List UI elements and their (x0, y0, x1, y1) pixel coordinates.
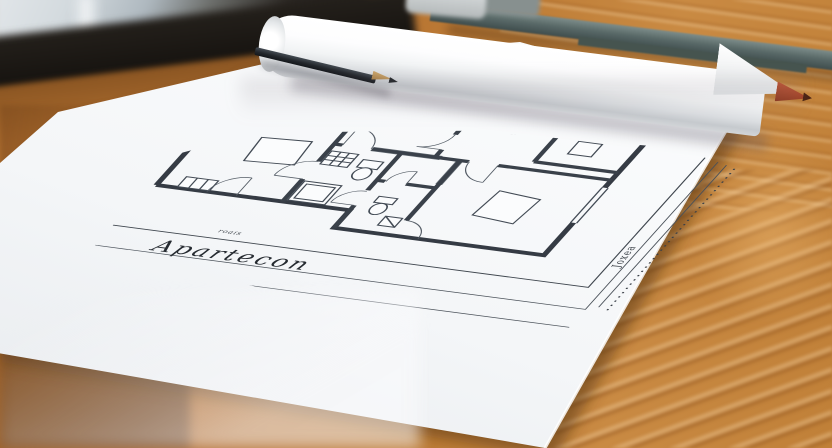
soft-shadow-overlay (240, 78, 800, 118)
focus-blur-overlay (0, 290, 420, 448)
photo-scene: roais Apartecon Joxea (0, 0, 832, 448)
